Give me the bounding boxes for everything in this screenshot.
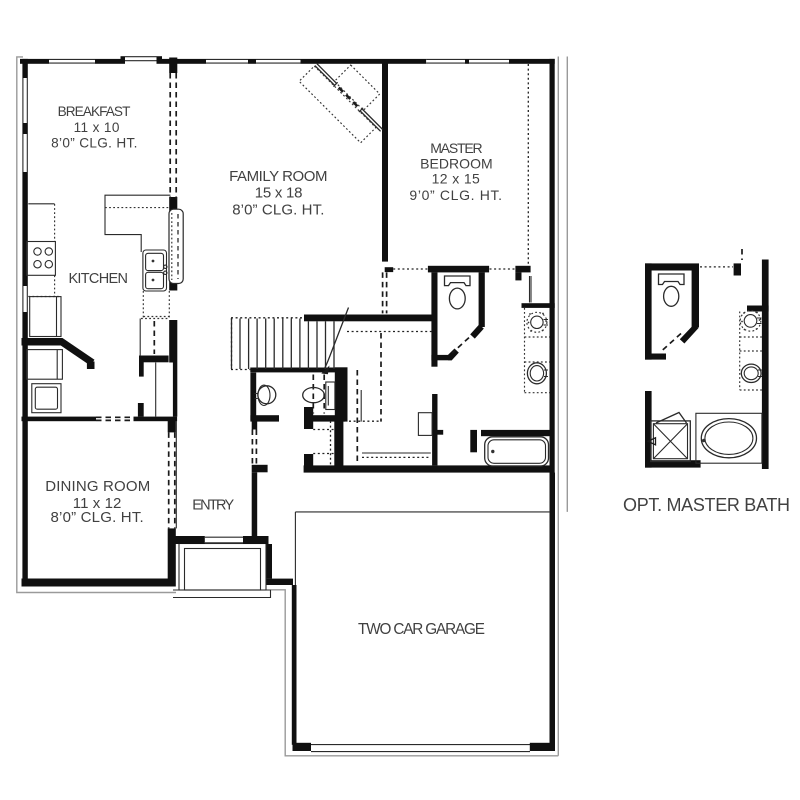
svg-text:8’0” CLG. HT.: 8’0” CLG. HT. — [51, 136, 137, 151]
svg-text:15 x 18: 15 x 18 — [255, 185, 303, 202]
svg-text:12 x 15: 12 x 15 — [432, 171, 480, 187]
svg-text:8’0” CLG. HT.: 8’0” CLG. HT. — [51, 509, 144, 526]
svg-text:KITCHEN: KITCHEN — [68, 271, 128, 287]
svg-text:BEDROOM: BEDROOM — [420, 156, 493, 172]
svg-text:TWO CAR GARAGE: TWO CAR GARAGE — [358, 621, 485, 638]
svg-text:DINING ROOM: DINING ROOM — [45, 478, 150, 495]
svg-text:8’0” CLG. HT.: 8’0” CLG. HT. — [232, 202, 324, 219]
svg-text:9’0” CLG. HT.: 9’0” CLG. HT. — [409, 187, 502, 203]
svg-text:BREAKFAST: BREAKFAST — [58, 104, 131, 119]
svg-text:OPT. MASTER BATH: OPT. MASTER BATH — [623, 495, 790, 515]
svg-text:ENTRY: ENTRY — [192, 498, 234, 514]
svg-text:11 x 10: 11 x 10 — [74, 120, 120, 135]
svg-text:MASTER: MASTER — [430, 140, 482, 156]
svg-text:FAMILY ROOM: FAMILY ROOM — [229, 168, 327, 185]
